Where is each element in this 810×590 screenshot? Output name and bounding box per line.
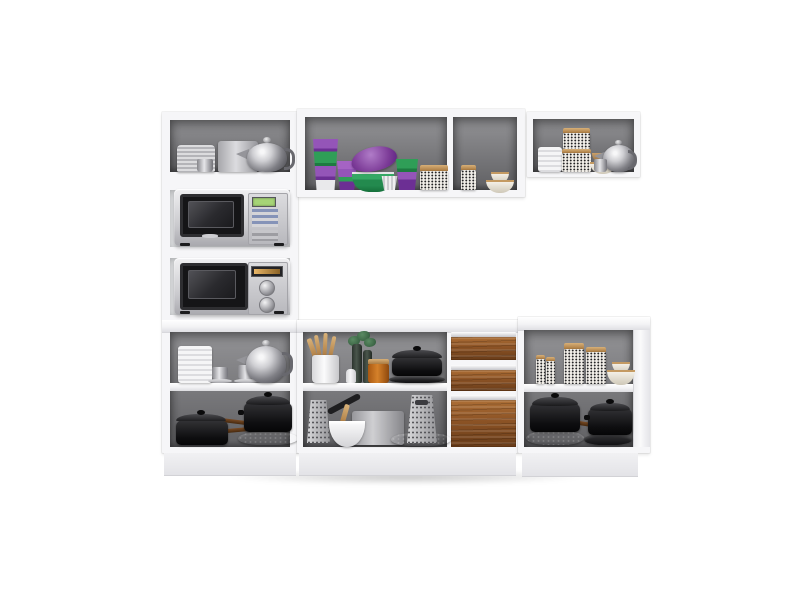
espresso-cup	[212, 367, 228, 379]
tall-patterned-jar	[586, 352, 606, 384]
roaster-base-pan	[389, 376, 445, 383]
small-patterned-jar	[546, 361, 555, 384]
patterned-canister	[563, 133, 590, 149]
pot-lid	[246, 396, 290, 405]
center-shelf	[303, 383, 447, 391]
wood-drawer-3	[451, 400, 516, 447]
grater-handle-slot	[415, 400, 428, 405]
black-roaster	[392, 358, 442, 376]
lid-knob	[264, 392, 272, 397]
right-toe-kick	[522, 453, 638, 477]
microwave-upper-display	[252, 197, 276, 207]
pot-lid	[532, 397, 578, 406]
microwave-upper-window	[188, 201, 234, 228]
patterned-canister	[562, 153, 591, 172]
black-casserole	[176, 421, 228, 445]
utensil-crock	[312, 355, 339, 383]
right-shelf	[524, 384, 633, 392]
wood-drawer-1	[451, 337, 516, 360]
teapot-knob	[615, 140, 622, 145]
tumbler-stack-green-purple	[313, 139, 338, 190]
patterned-tin	[420, 171, 448, 190]
teapot	[246, 346, 286, 383]
black-pot	[244, 403, 292, 432]
microwave-foot	[180, 243, 190, 246]
microwave-dial	[259, 280, 275, 296]
teapot	[247, 143, 287, 172]
microwave-foot	[180, 311, 190, 314]
white-cup-stack	[538, 147, 562, 172]
lid-knob	[413, 346, 421, 351]
right-side-panel	[633, 330, 650, 447]
microwave-foot	[274, 243, 284, 246]
black-pot	[588, 409, 632, 435]
tumbler-stack-green	[396, 159, 418, 190]
pot-handle	[584, 415, 590, 420]
box-grater	[307, 400, 330, 443]
microwave-dial	[259, 297, 275, 313]
roasting-pan	[584, 434, 632, 445]
lid-knob	[551, 393, 559, 398]
espresso-cup	[197, 159, 213, 172]
kitchen-cabinet-set-photo	[0, 0, 810, 590]
roasting-pan	[526, 431, 584, 445]
small-patterned-jar	[536, 359, 545, 384]
right-countertop	[518, 317, 650, 331]
chrome-creamer	[594, 159, 607, 172]
tower-base-shelf	[170, 383, 290, 391]
white-canister	[178, 346, 212, 383]
microwave-lower-display	[251, 266, 283, 277]
roasting-pan	[238, 432, 298, 445]
salt-shaker	[346, 369, 356, 383]
microwave-foot	[274, 311, 284, 314]
teapot-knob	[262, 340, 270, 346]
center-toe-kick	[299, 453, 516, 476]
amber-jar	[368, 364, 389, 383]
wood-drawer-2	[451, 370, 516, 391]
lid-knob	[606, 399, 614, 404]
cup-saucer	[208, 379, 232, 383]
microwave-upper-buttons	[252, 230, 278, 241]
patterned-jar	[461, 170, 476, 190]
teapot-knob	[263, 137, 271, 143]
pot-lid	[590, 403, 630, 411]
microwave-lower-window	[188, 270, 236, 299]
microwave-upper-keypad	[252, 209, 278, 227]
tower-toe-kick	[164, 453, 296, 476]
black-pot	[530, 404, 580, 432]
microwave-upper-logo	[202, 234, 218, 238]
tall-patterned-jar	[564, 349, 584, 384]
lid-knob	[197, 410, 205, 415]
pot-handle	[238, 410, 244, 415]
